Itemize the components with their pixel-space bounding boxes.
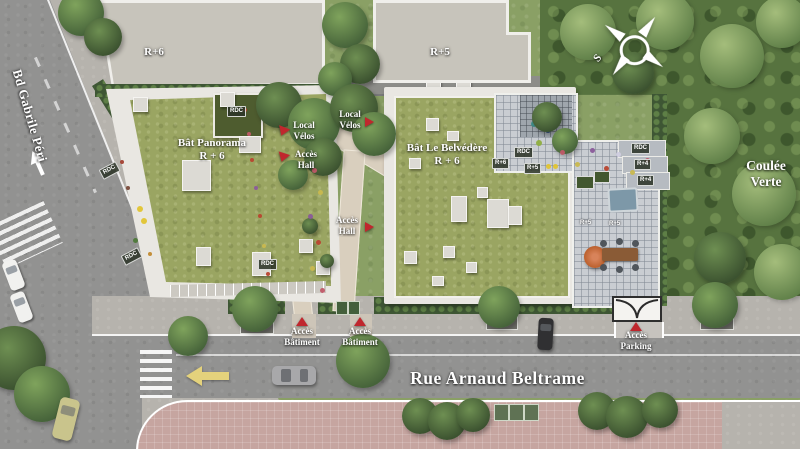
badge-panorama-roof: RDC (227, 106, 246, 117)
badge-wing-rdc: RDC (631, 143, 650, 154)
badge-belvedere-rdc: RDC (514, 147, 533, 158)
utility-cabinet (509, 404, 524, 421)
terrace-table (602, 248, 638, 261)
site-plan: S Bd Gabrile Péri Rue Arnaud Beltrame Co… (0, 0, 800, 449)
badge-wing-r4-1: R+4 (634, 159, 651, 170)
marker-batiment-east (354, 317, 366, 326)
bin-2 (348, 301, 360, 315)
context-level-r6: R+6 (124, 46, 184, 59)
badge-rdc-south: RDC (258, 259, 277, 270)
batiment-west-label: Accès Bâtiment (270, 326, 334, 347)
batiment-east-label: Accès Bâtiment (328, 326, 392, 347)
badge-wing-r4-2: R+4 (637, 175, 654, 186)
utility-cabinet (494, 404, 509, 421)
street-name-bottom: Rue Arnaud Beltrame (405, 368, 590, 389)
utility-cabinet (524, 404, 539, 421)
coulee-verte-label: Coulée Verte (728, 158, 800, 190)
bottom-road (0, 336, 800, 398)
panorama-label: Bât Panorama R + 6 (151, 137, 273, 163)
parking-gate (612, 296, 662, 322)
lane-line (176, 354, 800, 356)
parking-gate-arcs (614, 298, 660, 320)
crosswalk-bottom (140, 350, 172, 398)
planter-1 (576, 176, 594, 189)
marker-batiment-west (296, 317, 308, 326)
badge-terrace-r5-west: R+5 (580, 220, 591, 226)
badge-terrace-r5-east: R+5 (609, 221, 620, 227)
planter-2 (594, 171, 610, 183)
car-gray (272, 366, 316, 385)
yellow-arrow (186, 366, 230, 386)
badge-belvedere-r5: R+5 (524, 163, 541, 174)
context-level-r5: R+5 (410, 46, 470, 59)
driveway-pavement (722, 402, 800, 449)
water-feature (607, 187, 638, 213)
hall-west-label: Accès Hall (276, 149, 336, 170)
hall-east-label: Accès Hall (319, 215, 375, 236)
badge-belvedere-r6: R+6 (492, 158, 509, 169)
local-velos-east-label: Local Vélos (322, 109, 378, 130)
parking-label: Accès Parking (604, 330, 668, 351)
bin-1 (336, 301, 348, 315)
car-black (537, 318, 554, 351)
